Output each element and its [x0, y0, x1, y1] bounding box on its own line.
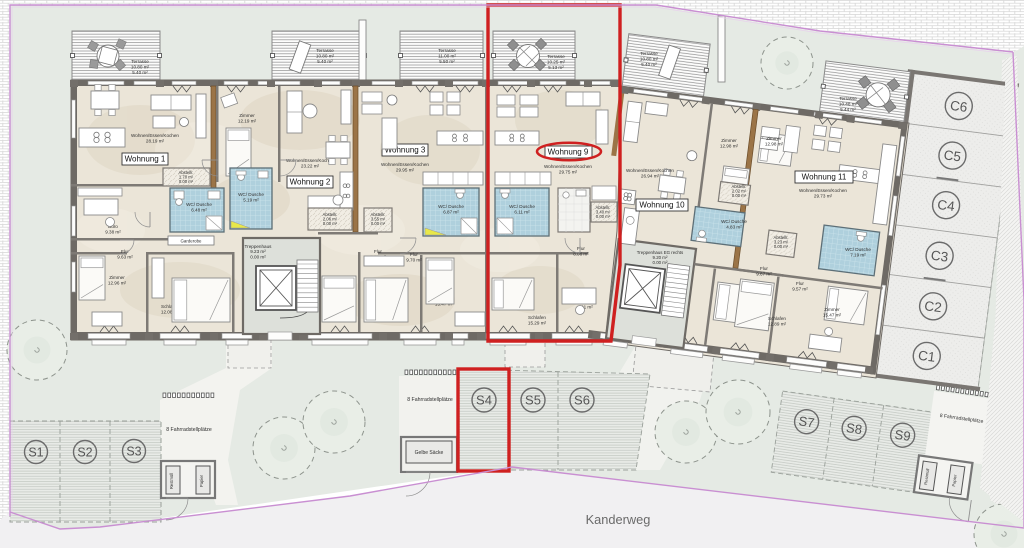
svg-text:Schlafen: Schlafen — [768, 316, 786, 321]
svg-text:Terrasse: Terrasse — [316, 48, 334, 53]
svg-text:8 Fahrradstellplätze: 8 Fahrradstellplätze — [407, 397, 453, 403]
svg-text:9.67 m²: 9.67 m² — [756, 271, 772, 276]
svg-text:26.94 m²: 26.94 m² — [641, 173, 660, 178]
svg-text:S7: S7 — [798, 413, 816, 430]
svg-text:10.80 m²: 10.80 m² — [131, 64, 150, 69]
svg-text:C3: C3 — [930, 248, 949, 265]
svg-text:Zimmer: Zimmer — [824, 307, 840, 312]
svg-text:Kanderweg: Kanderweg — [586, 512, 651, 527]
svg-text:Terrasse: Terrasse — [438, 48, 456, 53]
svg-text:Flur: Flur — [374, 249, 382, 254]
svg-text:9.70 m²: 9.70 m² — [406, 257, 422, 262]
svg-text:10.25 m²: 10.25 m² — [547, 59, 566, 64]
svg-text:Wohnen/Essen/Kochen: Wohnen/Essen/Kochen — [799, 188, 847, 193]
svg-text:12.98 m²: 12.98 m² — [765, 141, 784, 146]
svg-text:S2: S2 — [77, 446, 92, 460]
svg-text:Zimmer: Zimmer — [721, 138, 737, 143]
svg-text:Flur: Flur — [760, 266, 768, 271]
svg-text:5.13 m²: 5.13 m² — [548, 65, 564, 70]
svg-text:C4: C4 — [937, 197, 957, 214]
svg-text:C2: C2 — [924, 298, 943, 315]
svg-text:Terrasse: Terrasse — [839, 96, 857, 101]
svg-text:29.75 m²: 29.75 m² — [559, 169, 578, 174]
svg-text:Flur: Flur — [577, 246, 585, 251]
svg-text:0.00 m²: 0.00 m² — [250, 254, 266, 259]
svg-text:Gelbe Säcke: Gelbe Säcke — [415, 450, 444, 456]
svg-text:S9: S9 — [894, 427, 912, 444]
svg-text:S8: S8 — [845, 420, 863, 437]
svg-text:0.00 m²: 0.00 m² — [371, 221, 386, 226]
svg-text:9.38 m²: 9.38 m² — [105, 229, 121, 234]
svg-text:Wohnen/Essen/Kochen: Wohnen/Essen/Kochen — [131, 133, 179, 138]
svg-text:Restmüll: Restmüll — [169, 473, 174, 489]
svg-text:5.40 m²: 5.40 m² — [132, 70, 148, 75]
svg-text:0.00 m²: 0.00 m² — [179, 179, 194, 184]
svg-text:Wohnung 10: Wohnung 10 — [639, 201, 685, 210]
svg-text:10.80 m²: 10.80 m² — [640, 56, 659, 61]
svg-text:Schlafen: Schlafen — [528, 315, 546, 320]
svg-text:S1: S1 — [28, 446, 43, 460]
svg-text:Terrasse: Terrasse — [640, 51, 658, 56]
svg-text:C6: C6 — [949, 98, 968, 115]
svg-text:Flur: Flur — [410, 252, 418, 257]
svg-text:0.00 m²: 0.00 m² — [732, 193, 747, 198]
svg-text:Garderobe: Garderobe — [181, 239, 203, 244]
svg-text:WC/ Dusche: WC/ Dusche — [186, 202, 212, 207]
svg-text:10.80 m²: 10.80 m² — [316, 53, 335, 58]
svg-text:Zimmer: Zimmer — [766, 136, 782, 141]
svg-text:5.40 m²: 5.40 m² — [641, 62, 657, 67]
svg-text:Zimmer: Zimmer — [239, 113, 255, 118]
svg-text:12.19 m²: 12.19 m² — [238, 118, 257, 123]
svg-text:5.40 m²: 5.40 m² — [317, 59, 333, 64]
svg-text:WC/ Dusche: WC/ Dusche — [438, 204, 464, 209]
svg-text:29.73 m²: 29.73 m² — [814, 193, 833, 198]
svg-text:23.22 m²: 23.22 m² — [301, 163, 320, 168]
svg-text:C5: C5 — [943, 147, 962, 164]
svg-text:5.19 m²: 5.19 m² — [243, 197, 259, 202]
svg-text:0.00 m²: 0.00 m² — [653, 260, 668, 265]
svg-text:6.11 m²: 6.11 m² — [514, 209, 530, 214]
svg-text:10.48 m²: 10.48 m² — [839, 101, 858, 106]
svg-text:29.95 m²: 29.95 m² — [396, 167, 415, 172]
svg-text:Flur: Flur — [796, 281, 804, 286]
svg-text:7.19 m²: 7.19 m² — [850, 252, 866, 257]
svg-text:15.29 m²: 15.29 m² — [528, 320, 547, 325]
svg-text:12.96 m²: 12.96 m² — [108, 280, 127, 285]
svg-text:WC/ Dusche: WC/ Dusche — [238, 192, 264, 197]
svg-text:Zimmer: Zimmer — [109, 275, 125, 280]
svg-text:4.83 m²: 4.83 m² — [726, 224, 742, 229]
svg-text:Terrasse: Terrasse — [131, 59, 149, 64]
svg-text:S4: S4 — [476, 393, 492, 408]
svg-text:0.00 m²: 0.00 m² — [774, 244, 789, 249]
svg-text:Terrasse: Terrasse — [547, 54, 565, 59]
svg-text:Wohnen/Essen/Kochen: Wohnen/Essen/Kochen — [544, 164, 592, 169]
svg-text:11.00 m²: 11.00 m² — [438, 53, 456, 58]
svg-text:S6: S6 — [574, 393, 590, 408]
svg-text:S3: S3 — [126, 445, 141, 459]
svg-text:Wohnung 1: Wohnung 1 — [125, 155, 166, 164]
svg-text:5.50 m²: 5.50 m² — [439, 59, 455, 64]
svg-text:12.89 m²: 12.89 m² — [768, 321, 787, 326]
svg-text:6.48 m²: 6.48 m² — [191, 207, 207, 212]
svg-text:8 Fahrradstellplätze: 8 Fahrradstellplätze — [166, 427, 212, 433]
svg-text:0.00 m²: 0.00 m² — [596, 214, 611, 219]
svg-text:WC/ Dusche: WC/ Dusche — [509, 204, 535, 209]
svg-text:28.19 m²: 28.19 m² — [146, 138, 165, 143]
svg-text:Papier: Papier — [199, 474, 204, 487]
svg-text:Wohnung 2: Wohnung 2 — [290, 178, 331, 187]
svg-text:Wohnen/Essen/Kochen: Wohnen/Essen/Kochen — [381, 162, 429, 167]
svg-text:C1: C1 — [917, 348, 936, 365]
svg-text:5.44 m²: 5.44 m² — [840, 107, 856, 112]
svg-text:Wohnung 11: Wohnung 11 — [802, 173, 847, 182]
svg-text:12.98 m²: 12.98 m² — [720, 143, 739, 148]
svg-text:Wohnen/Essen/Kochen: Wohnen/Essen/Kochen — [626, 168, 674, 173]
svg-text:Wohnung 9: Wohnung 9 — [548, 148, 589, 157]
svg-text:15.47 m²: 15.47 m² — [823, 312, 842, 317]
svg-text:0.00 m²: 0.00 m² — [323, 221, 338, 226]
svg-text:9.63 m²: 9.63 m² — [117, 254, 133, 259]
svg-text:WC/ Dusche: WC/ Dusche — [721, 219, 747, 224]
svg-text:6.87 m²: 6.87 m² — [443, 209, 459, 214]
svg-text:Wohnen/Essen/Kochen: Wohnen/Essen/Kochen — [286, 158, 334, 163]
svg-text:S5: S5 — [525, 393, 541, 408]
svg-text:9.57 m²: 9.57 m² — [792, 286, 808, 291]
svg-text:WC/ Dusche: WC/ Dusche — [845, 247, 871, 252]
